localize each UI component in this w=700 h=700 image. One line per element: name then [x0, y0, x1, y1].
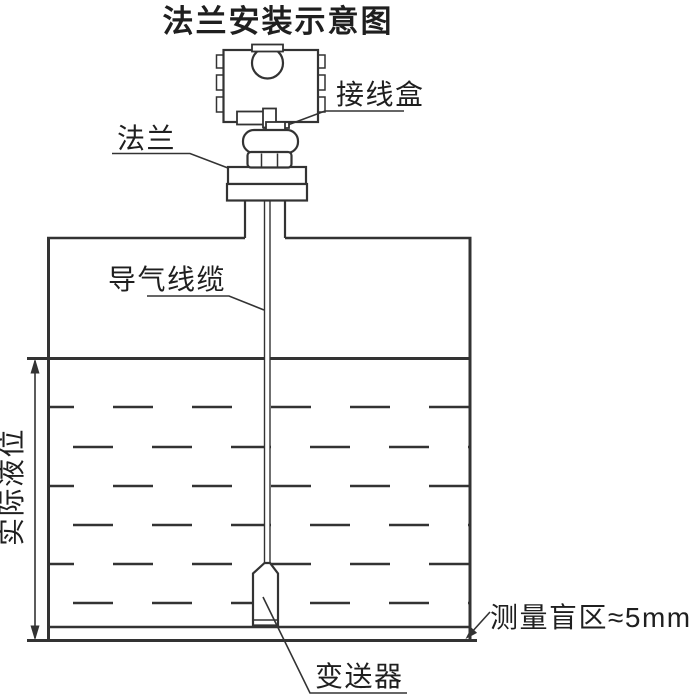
flange-leader: [112, 154, 228, 169]
transmitter-head: [217, 45, 326, 168]
actual-level-label: 实际液位: [0, 428, 27, 546]
probe-body: [253, 563, 278, 626]
diagram-title: 法兰安装示意图: [163, 4, 394, 39]
hex-nut: [248, 152, 292, 168]
flange-label: 法兰: [117, 123, 176, 154]
flange-plate-top: [228, 167, 306, 184]
air-guide-cable: [265, 200, 271, 564]
blind-zone-arrow-line: [471, 612, 490, 633]
level-dimension: [31, 359, 40, 641]
cable-line: [265, 200, 271, 564]
labels: 法兰安装示意图 接线盒 法兰 导气线缆 实际液位 变送器 测量盲区≈5mm: [0, 4, 692, 692]
transmitter-label: 变送器: [315, 661, 404, 692]
flange-plate-bottom: [227, 184, 307, 201]
blind-zone-label: 测量盲区≈5mm: [490, 602, 692, 633]
junction-box-label: 接线盒: [336, 79, 425, 110]
diagram-svg: 法兰安装示意图 接线盒 法兰 导气线缆 实际液位 变送器 测量盲区≈5mm: [0, 0, 700, 700]
air-cable-leader: [147, 296, 264, 310]
dimension-arrowhead-down: [31, 626, 40, 641]
flange-installation-diagram: 法兰安装示意图 接线盒 法兰 导气线缆 实际液位 变送器 测量盲区≈5mm: [0, 0, 700, 700]
process-fitting: [243, 130, 298, 153]
air-cable-label: 导气线缆: [108, 264, 226, 295]
head-top-tab: [252, 45, 283, 52]
conduit-entry: [237, 112, 265, 125]
transmitter-probe: [253, 563, 278, 626]
dimension-arrowhead-up: [31, 359, 40, 374]
